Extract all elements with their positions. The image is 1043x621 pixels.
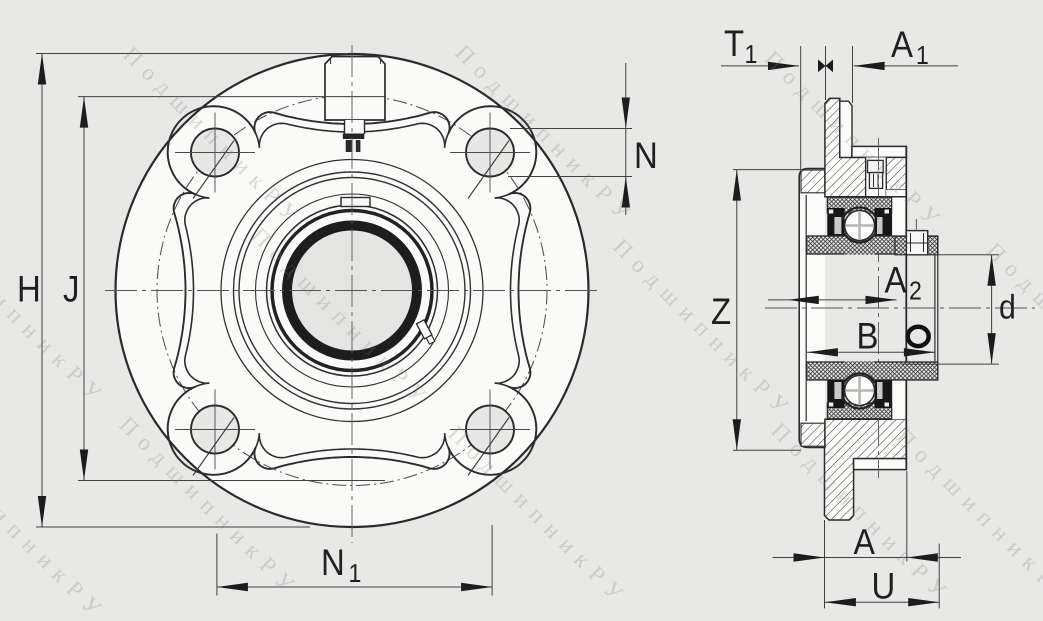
svg-text:A: A bbox=[891, 24, 913, 65]
svg-text:B: B bbox=[857, 316, 879, 357]
svg-text:N: N bbox=[321, 542, 345, 583]
svg-text:A: A bbox=[885, 260, 907, 301]
svg-text:1: 1 bbox=[349, 558, 362, 588]
svg-text:2: 2 bbox=[909, 276, 922, 306]
svg-text:U: U bbox=[872, 566, 896, 607]
svg-text:J: J bbox=[63, 268, 79, 309]
svg-text:T: T bbox=[724, 23, 744, 64]
svg-text:1: 1 bbox=[745, 39, 758, 69]
svg-text:d: d bbox=[999, 289, 1016, 327]
svg-text:1: 1 bbox=[916, 40, 929, 70]
svg-text:N: N bbox=[634, 135, 658, 176]
